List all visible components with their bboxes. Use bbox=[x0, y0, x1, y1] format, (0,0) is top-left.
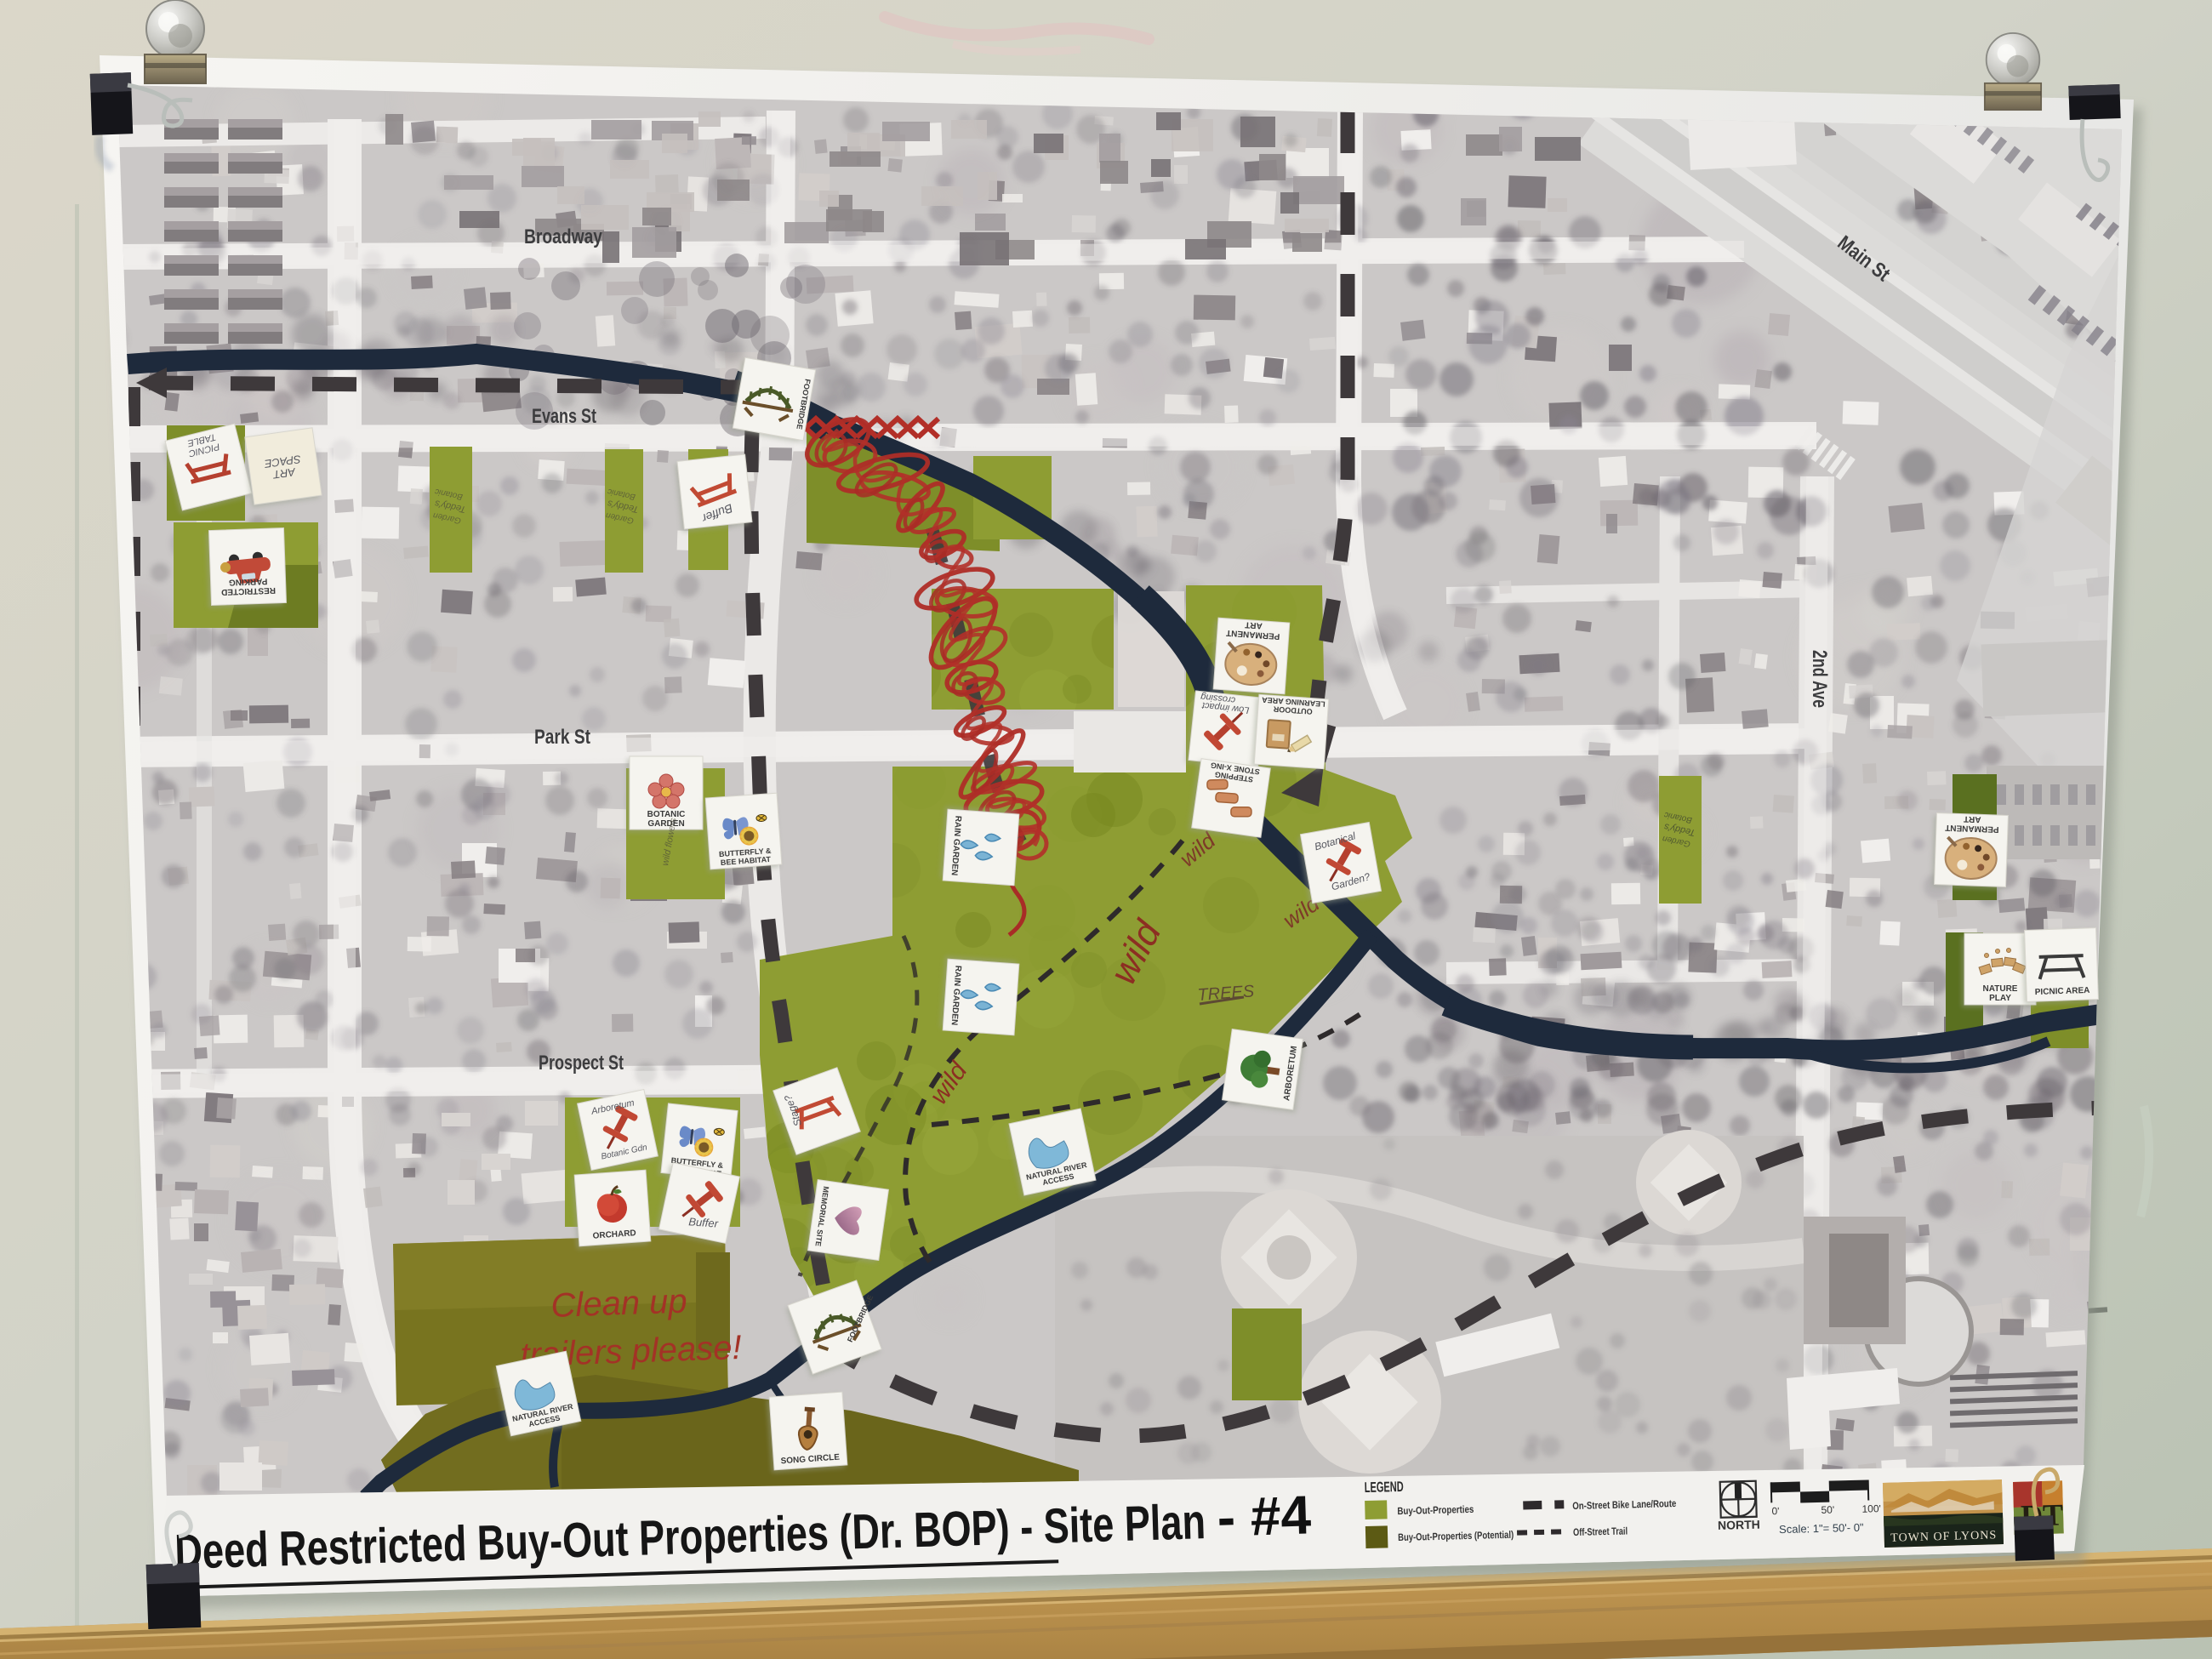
svg-text:Park St: Park St bbox=[534, 726, 590, 749]
svg-text:LEGEND: LEGEND bbox=[1364, 1479, 1403, 1496]
svg-text:Evans St: Evans St bbox=[532, 405, 596, 428]
svg-text:Off-Street Trail: Off-Street Trail bbox=[1573, 1525, 1628, 1538]
svg-text:Prospect St: Prospect St bbox=[539, 1052, 624, 1075]
svg-text:Clean up: Clean up bbox=[550, 1282, 688, 1325]
svg-text:ART: ART bbox=[1245, 619, 1263, 630]
svg-text:BOTANIC: BOTANIC bbox=[647, 810, 686, 819]
svg-text:NATURE: NATURE bbox=[1983, 984, 2018, 994]
svg-text:100': 100' bbox=[1861, 1502, 1881, 1515]
svg-text:50': 50' bbox=[1821, 1504, 1834, 1516]
svg-text:PLAY: PLAY bbox=[1989, 994, 2011, 1003]
svg-text:Buy-Out-Properties: Buy-Out-Properties bbox=[1397, 1503, 1474, 1517]
svg-text:PARKING: PARKING bbox=[229, 576, 268, 587]
svg-text:Buffer: Buffer bbox=[688, 1215, 719, 1229]
svg-text:ART: ART bbox=[1964, 814, 1981, 824]
svg-text:0': 0' bbox=[1771, 1505, 1779, 1517]
svg-text:- #4: - #4 bbox=[1217, 1484, 1313, 1548]
svg-text:Broadway: Broadway bbox=[524, 225, 603, 248]
svg-text:2nd Ave: 2nd Ave bbox=[1808, 650, 1831, 708]
svg-text:PICNIC AREA: PICNIC AREA bbox=[2035, 986, 2090, 997]
svg-text:Scale: 1"= 50'- 0": Scale: 1"= 50'- 0" bbox=[1779, 1521, 1864, 1536]
svg-text:NORTH: NORTH bbox=[1718, 1518, 1760, 1532]
svg-text:On-Street Bike Lane/Route: On-Street Bike Lane/Route bbox=[1572, 1497, 1677, 1512]
svg-text:TREES: TREES bbox=[1197, 982, 1256, 1005]
